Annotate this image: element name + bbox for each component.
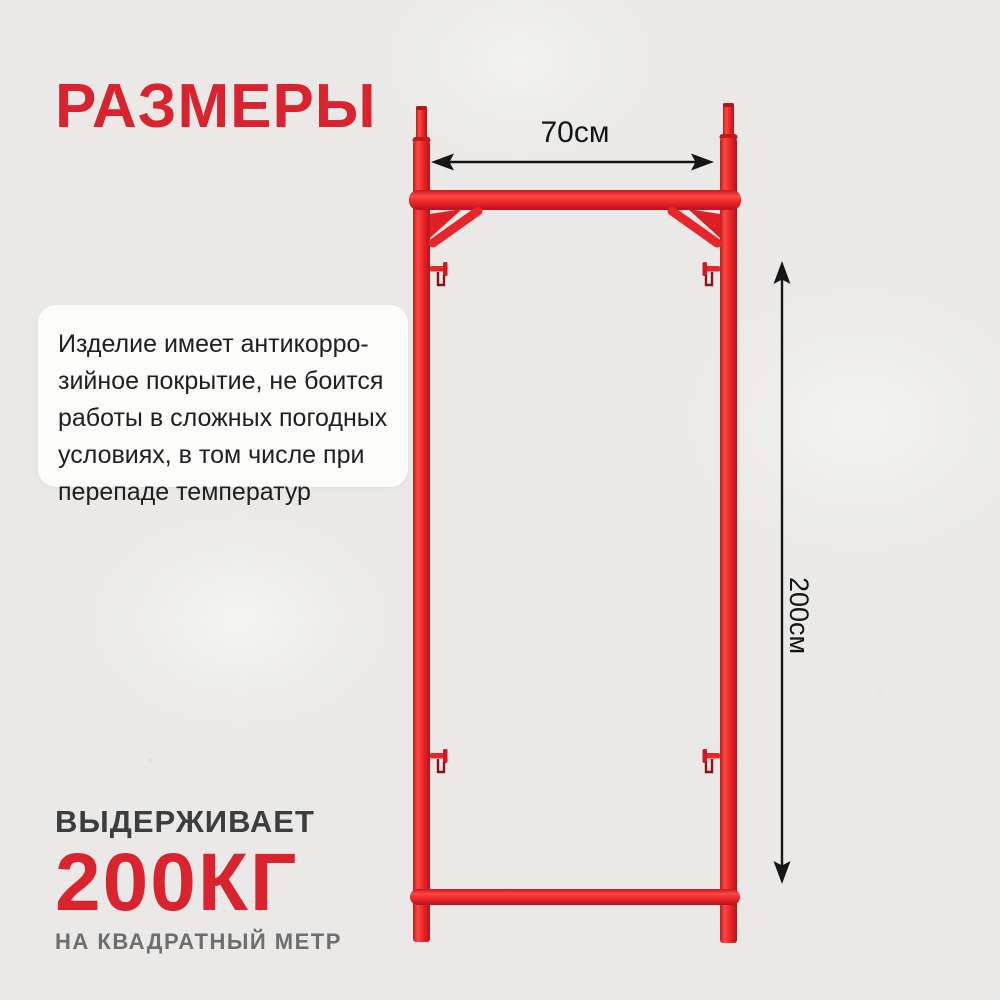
latch-clip-bottom-left (430, 749, 448, 772)
left-post (413, 106, 431, 942)
height-dimension-arrow-icon (774, 261, 791, 884)
top-crossbar (409, 190, 741, 210)
gusset-braces (433, 211, 717, 243)
product-infographic-page: РАЗМЕРЫ Изделие имеет антикорро- зийное … (0, 0, 1000, 1000)
width-dimension-label: 70см (505, 118, 645, 148)
scaffold-frame (409, 103, 741, 943)
scaffold-frame-photo (0, 0, 1000, 1000)
latch-clip-bottom-right (703, 749, 721, 772)
latch-clip-top-left (430, 262, 448, 285)
height-dimension-label: 200см (786, 577, 812, 654)
right-post (720, 103, 738, 943)
width-dimension-arrow-icon (431, 154, 714, 171)
bottom-crossbar (410, 889, 740, 905)
latch-clip-top-right (703, 262, 721, 285)
